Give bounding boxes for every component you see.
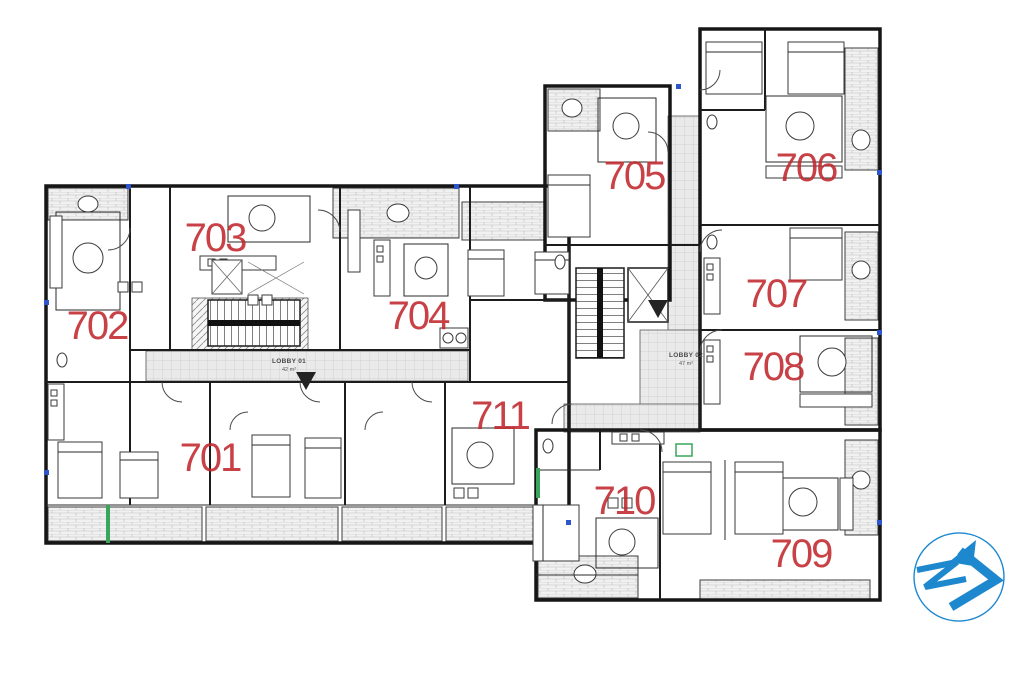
unit-label-705: 705 [604,154,665,198]
lobby-1-area: 42 m² [282,367,296,373]
unit-label-703: 703 [185,216,246,260]
unit-label-704: 704 [388,294,450,338]
floor-plan-drawing: 701 702 703 704 705 706 707 708 709 710 … [0,0,1028,678]
staircase-lobby-1 [208,300,300,346]
lobby-2-area: 47 m² [679,361,693,367]
unit-label-707: 707 [746,272,807,316]
unit-label-702: 702 [67,304,128,348]
elevator-shaft [628,268,668,322]
lobby-1-name: LOBBY 01 [272,358,306,365]
floor-plan-page: 701 702 703 704 705 706 707 708 709 710 … [0,0,1028,678]
unit-label-709: 709 [771,532,832,576]
logo-z-icon [917,562,966,587]
unit-label-701: 701 [180,436,241,480]
company-logo [909,528,1009,626]
unit-label-710: 710 [594,479,655,523]
staircase-lobby-2 [576,268,624,358]
lobby-2-name: LOBBY 02 [669,352,703,359]
unit-label-706: 706 [776,146,837,190]
unit-label-711: 711 [471,394,530,438]
unit-label-708: 708 [743,345,804,389]
